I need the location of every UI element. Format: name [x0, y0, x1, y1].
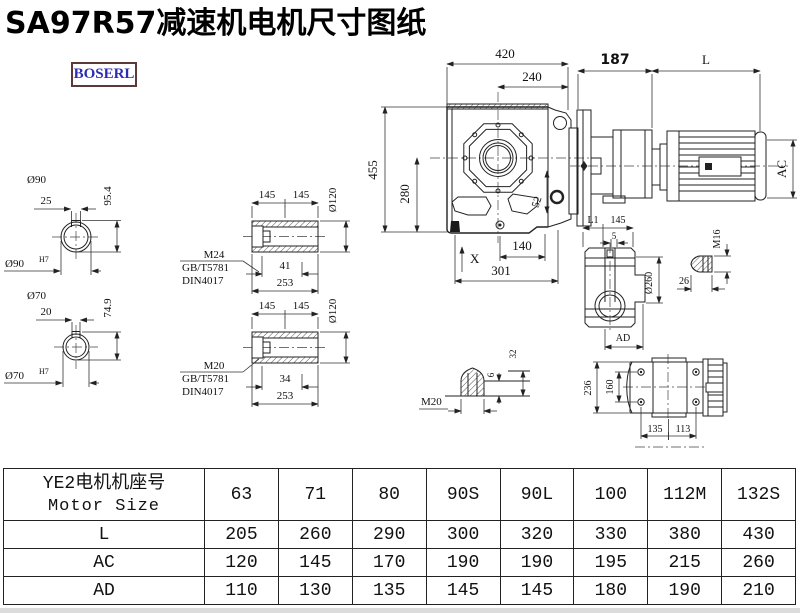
- dim-5: 5: [612, 231, 617, 241]
- table-row-AD: AD 110 130 135 145 145 180 190 210: [4, 577, 796, 605]
- dim-140: 140: [512, 238, 532, 253]
- value-AC-100: 195: [574, 549, 648, 577]
- dim-key25: 25: [41, 195, 53, 207]
- dim-AC: AC: [774, 160, 789, 178]
- label-x: X: [470, 251, 480, 266]
- dim-dia120a: Ø120: [327, 187, 339, 212]
- value-AC-90L: 190: [500, 549, 574, 577]
- dim-253a: 253: [277, 277, 294, 289]
- header-en: Motor Size: [4, 496, 204, 518]
- value-L-100: 330: [574, 521, 648, 549]
- dim-41: 41: [280, 260, 291, 272]
- std-din-2: DIN4017: [182, 386, 224, 398]
- dim-135: 135: [648, 424, 663, 435]
- bottom-scroll-strip: [0, 608, 800, 613]
- dim-fit90-tol: H7: [39, 255, 49, 264]
- value-AD-100: 180: [574, 577, 648, 605]
- dim-32: 32: [508, 350, 518, 359]
- dim-L1: L1: [587, 215, 598, 226]
- size-col-90S: 90S: [426, 469, 500, 521]
- thread-m20: M20: [204, 360, 225, 372]
- dim-74-9: 74.9: [102, 298, 114, 318]
- dim-fit70: Ø70: [5, 370, 24, 382]
- header-cn: YE2电机机座号: [4, 472, 204, 496]
- technical-drawing: Ø90 25 95.4 Ø90 H7 Ø70 20: [0, 0, 800, 465]
- dim-M16: M16: [712, 230, 723, 249]
- dim-AD: AD: [616, 333, 630, 344]
- dim-34: 34: [280, 373, 292, 385]
- value-AC-132S: 260: [722, 549, 796, 577]
- dim-dia120b: Ø120: [327, 298, 339, 323]
- dim-95-4: 95.4: [102, 186, 114, 206]
- value-AD-112M: 190: [648, 577, 722, 605]
- dim-145d: 145: [293, 300, 310, 312]
- size-col-63: 63: [205, 469, 279, 521]
- gearbox-top-view: 236 160 135 113: [583, 354, 727, 447]
- dim-52: 52: [530, 195, 545, 209]
- row-label-AC: AC: [4, 549, 205, 577]
- shaft-section-90: Ø90 25 95.4 Ø90 H7: [4, 174, 121, 275]
- value-L-90S: 300: [426, 521, 500, 549]
- dim-240: 240: [522, 69, 542, 84]
- gearmotor-side-view: 187 L AC: [570, 52, 797, 226]
- value-AC-71: 145: [278, 549, 352, 577]
- hollow-shaft-m20: 145 145 Ø120 M20 GB/T5781 DIN4017 34 253: [180, 298, 350, 407]
- value-L-112M: 380: [648, 521, 722, 549]
- dim-fit90: Ø90: [5, 258, 24, 270]
- dim-420: 420: [495, 46, 515, 61]
- row-label-L: L: [4, 521, 205, 549]
- dim-455: 455: [365, 160, 380, 180]
- thread-m24: M24: [204, 249, 225, 261]
- value-L-71: 260: [278, 521, 352, 549]
- gearbox-front-view: 420 240 455 280 52 140 301 X: [365, 46, 600, 284]
- dim-145a: 145: [259, 189, 276, 201]
- size-col-80: 80: [352, 469, 426, 521]
- table-row-AC: AC 120 145 170 190 190 195 215 260: [4, 549, 796, 577]
- size-col-100: 100: [574, 469, 648, 521]
- row-label-AD: AD: [4, 577, 205, 605]
- drawing-sheet: SA97R57减速机电机尺寸图纸 BOSERL Ø90 25 95.4: [0, 0, 800, 613]
- size-col-90L: 90L: [500, 469, 574, 521]
- value-AC-90S: 190: [426, 549, 500, 577]
- size-col-71: 71: [278, 469, 352, 521]
- stud-detail-m16: M16 26: [677, 230, 731, 292]
- value-L-80: 290: [352, 521, 426, 549]
- value-AD-71: 130: [278, 577, 352, 605]
- value-AD-80: 135: [352, 577, 426, 605]
- shaft-tip-detail-m20: M20 6 32: [419, 350, 530, 415]
- shaft-section-70: Ø70 20 74.9 Ø70 H7: [4, 290, 121, 387]
- value-AD-63: 110: [205, 577, 279, 605]
- value-AC-112M: 215: [648, 549, 722, 577]
- value-AD-132S: 210: [722, 577, 796, 605]
- value-AD-90L: 145: [500, 577, 574, 605]
- dim-6: 6: [486, 372, 496, 377]
- dim-301: 301: [491, 263, 511, 278]
- dim-dia70: Ø70: [27, 290, 46, 302]
- value-AC-80: 170: [352, 549, 426, 577]
- value-L-63: 205: [205, 521, 279, 549]
- value-AC-63: 120: [205, 549, 279, 577]
- dim-dia90: Ø90: [27, 174, 46, 186]
- dim-M20-tip: M20: [421, 396, 442, 408]
- value-L-90L: 320: [500, 521, 574, 549]
- dim-160: 160: [605, 380, 616, 395]
- value-L-132S: 430: [722, 521, 796, 549]
- dim-dia260: Ø260: [644, 272, 655, 294]
- dim-253b: 253: [277, 390, 294, 402]
- motor-dimension-table: YE2电机机座号 Motor Size 63 71 80 90S 90L 100…: [3, 468, 796, 605]
- hollow-shaft-m24: 145 145 Ø120 M24 GB/T5781 DIN4017 41 253: [180, 187, 350, 294]
- dim-145e: 145: [611, 215, 626, 226]
- dim-145c: 145: [259, 300, 276, 312]
- dim-236: 236: [583, 381, 594, 396]
- dim-L: L: [702, 52, 710, 67]
- dim-145b: 145: [293, 189, 310, 201]
- value-AD-90S: 145: [426, 577, 500, 605]
- dim-26: 26: [679, 276, 689, 287]
- size-col-112M: 112M: [648, 469, 722, 521]
- table-header-motor-size: YE2电机机座号 Motor Size: [4, 469, 205, 521]
- std-gbt-2: GB/T5781: [182, 373, 229, 385]
- dim-113: 113: [676, 424, 691, 435]
- std-gbt-1: GB/T5781: [182, 262, 229, 274]
- table-row-L: L 205 260 290 300 320 330 380 430: [4, 521, 796, 549]
- dim-280: 280: [397, 184, 412, 204]
- dim-187: 187: [600, 52, 629, 68]
- dim-key20: 20: [41, 306, 53, 318]
- size-col-132S: 132S: [722, 469, 796, 521]
- std-din-1: DIN4017: [182, 275, 224, 287]
- gearbox-vertical-side-view: L1 145 5 Ø260 A: [583, 215, 663, 350]
- dim-fit70-tol: H7: [39, 367, 49, 376]
